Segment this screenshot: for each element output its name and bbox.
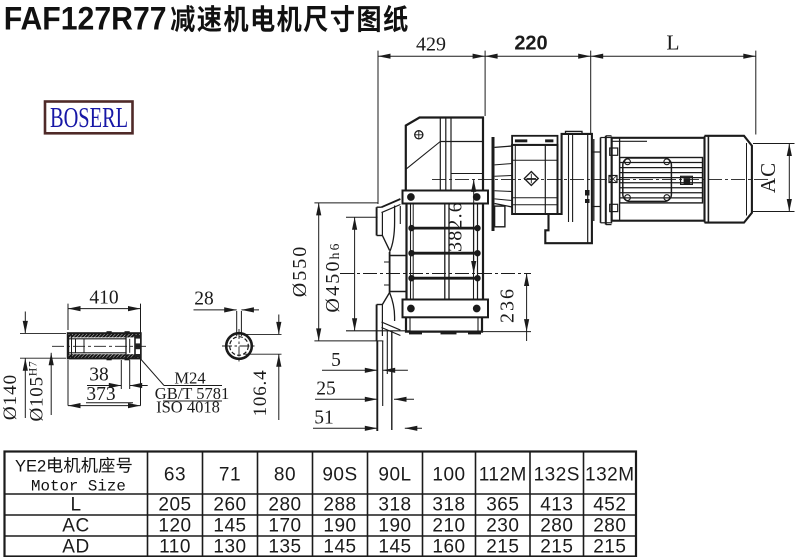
svg-text:63: 63 (164, 465, 186, 486)
svg-text:106.4: 106.4 (250, 370, 271, 417)
svg-text:215: 215 (486, 537, 519, 557)
svg-text:452: 452 (593, 495, 626, 516)
svg-text:AC: AC (62, 516, 89, 537)
svg-text:280: 280 (593, 516, 626, 537)
svg-text:215: 215 (593, 537, 626, 557)
svg-text:90S: 90S (322, 465, 357, 486)
svg-text:FAF127R77: FAF127R77 (4, 1, 167, 37)
svg-text:AC: AC (756, 162, 780, 193)
svg-text:Ø140: Ø140 (0, 374, 21, 420)
svg-text:YE2: YE2 (15, 458, 46, 476)
svg-text:429: 429 (416, 34, 446, 56)
svg-text:190: 190 (378, 516, 411, 537)
svg-text:135: 135 (268, 537, 301, 557)
svg-text:210: 210 (432, 516, 465, 537)
svg-text:413: 413 (540, 495, 573, 516)
svg-text:260: 260 (213, 495, 246, 516)
svg-text:288: 288 (323, 495, 356, 516)
svg-text:80: 80 (274, 465, 296, 486)
svg-text:25: 25 (316, 379, 336, 400)
svg-text:28: 28 (194, 289, 214, 310)
svg-text:280: 280 (268, 495, 301, 516)
svg-text:382.6: 382.6 (445, 201, 467, 252)
svg-text:132S: 132S (534, 465, 580, 486)
svg-text:220: 220 (514, 33, 547, 55)
svg-text:5: 5 (331, 350, 341, 371)
svg-text:L: L (666, 31, 679, 55)
svg-text:145: 145 (323, 537, 356, 557)
svg-text:Ø550: Ø550 (289, 245, 311, 297)
svg-text:120: 120 (158, 516, 191, 537)
svg-text:373: 373 (86, 384, 115, 405)
svg-text:190: 190 (323, 516, 356, 537)
svg-text:100: 100 (432, 465, 465, 486)
svg-text:365: 365 (486, 495, 519, 516)
svg-text:318: 318 (378, 495, 411, 516)
svg-text:BOSERL: BOSERL (50, 103, 128, 134)
svg-text:38: 38 (89, 365, 109, 386)
svg-text:280: 280 (540, 516, 573, 537)
svg-text:205: 205 (158, 495, 191, 516)
svg-text:236: 236 (497, 287, 519, 323)
svg-text:71: 71 (219, 465, 241, 486)
svg-text:230: 230 (486, 516, 519, 537)
svg-text:160: 160 (432, 537, 465, 557)
svg-text:ISO 4018: ISO 4018 (156, 398, 220, 417)
svg-text:Motor Size: Motor Size (31, 478, 126, 496)
svg-text:215: 215 (540, 537, 573, 557)
svg-text:318: 318 (432, 495, 465, 516)
svg-text:145: 145 (213, 516, 246, 537)
svg-text:L: L (70, 495, 81, 516)
svg-text:112M: 112M (479, 465, 527, 486)
svg-text:410: 410 (89, 288, 118, 309)
svg-text:170: 170 (268, 516, 301, 537)
svg-text:110: 110 (159, 537, 191, 557)
svg-text:132M: 132M (585, 465, 635, 486)
svg-text:51: 51 (314, 408, 334, 429)
svg-text:90L: 90L (378, 465, 411, 486)
svg-text:130: 130 (213, 537, 246, 557)
svg-text:AD: AD (62, 537, 89, 557)
svg-text:145: 145 (378, 537, 411, 557)
